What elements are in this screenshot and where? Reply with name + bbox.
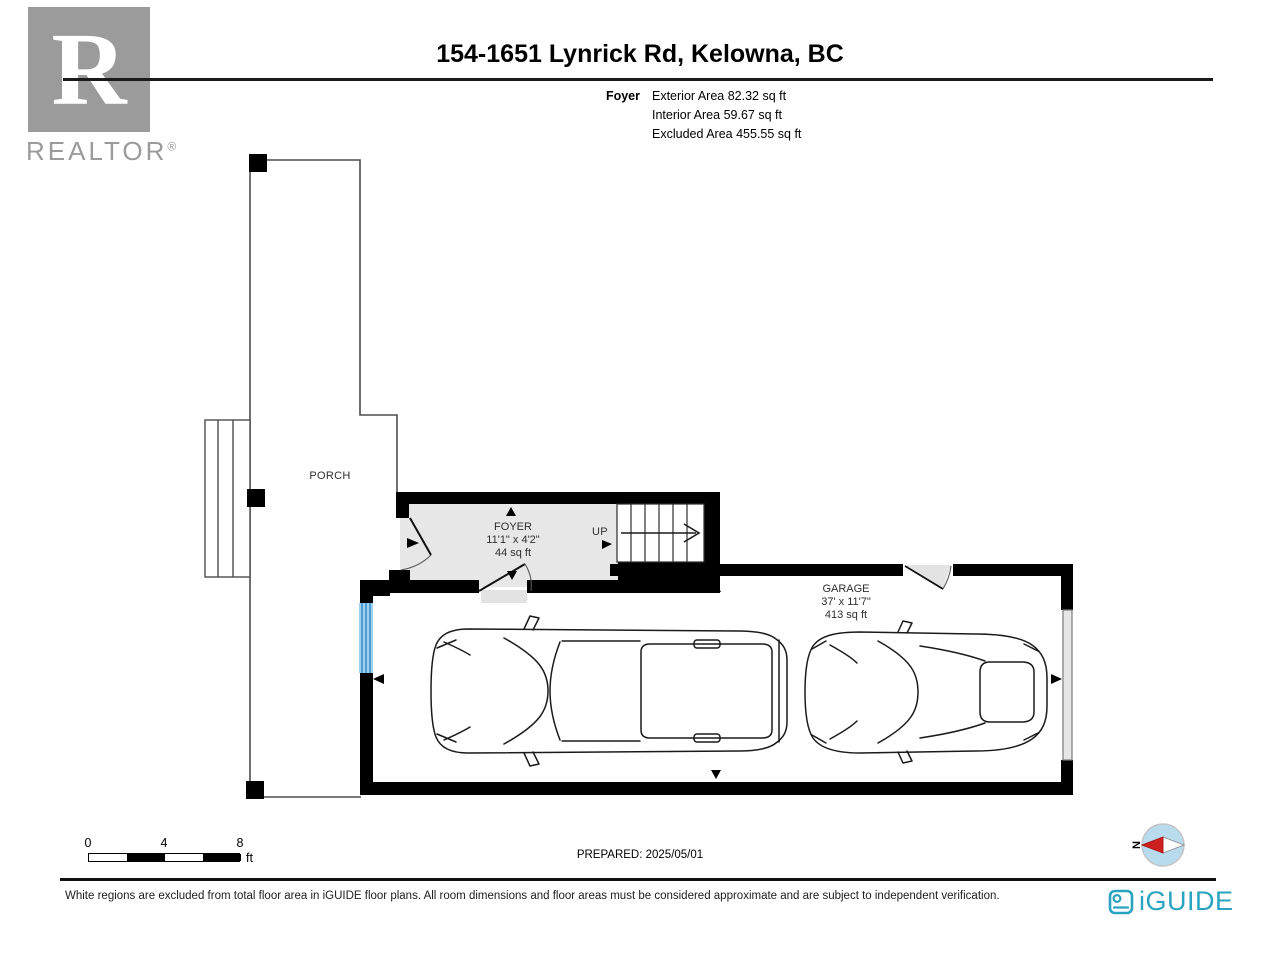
- iguide-camera-icon: [1108, 889, 1134, 915]
- truck-illustration: [431, 616, 787, 766]
- garage-area: 413 sq ft: [796, 609, 896, 622]
- iguide-wordmark: iGUIDE: [1139, 886, 1234, 917]
- car-illustration: [805, 621, 1047, 763]
- foyer-area: 44 sq ft: [453, 547, 573, 560]
- porch-label: PORCH: [306, 470, 354, 482]
- scale-tick-4: 4: [154, 836, 174, 850]
- floorplan-drawing: N: [0, 0, 1280, 960]
- foyer-dimensions: 11'1" x 4'2": [453, 534, 573, 547]
- scale-tick-0: 0: [78, 836, 98, 850]
- stairs: [617, 504, 704, 562]
- compass-north-label: N: [1131, 841, 1143, 849]
- footer-rule: [60, 878, 1216, 881]
- foyer-label: FOYER: [453, 521, 573, 534]
- porch-steps: [205, 420, 250, 577]
- iguide-logo: iGUIDE: [1108, 886, 1234, 917]
- foyer-label-block: FOYER 11'1" x 4'2" 44 sq ft: [453, 521, 573, 560]
- window-symbol: [359, 603, 373, 673]
- stairs-up-label: UP: [592, 526, 608, 538]
- garage-door-symbol: [1063, 610, 1072, 760]
- garage-label-block: GARAGE 37' x 11'7" 413 sq ft: [796, 583, 896, 622]
- scale-tick-8: 8: [230, 836, 250, 850]
- floorplan-page: R REALTOR® 154-1651 Lynrick Rd, Kelowna,…: [0, 0, 1280, 960]
- garage-label: GARAGE: [796, 583, 896, 596]
- garage-dimensions: 37' x 11'7": [796, 596, 896, 609]
- disclaimer-text: White regions are excluded from total fl…: [65, 890, 1000, 902]
- prepared-date: PREPARED: 2025/05/01: [0, 849, 1280, 861]
